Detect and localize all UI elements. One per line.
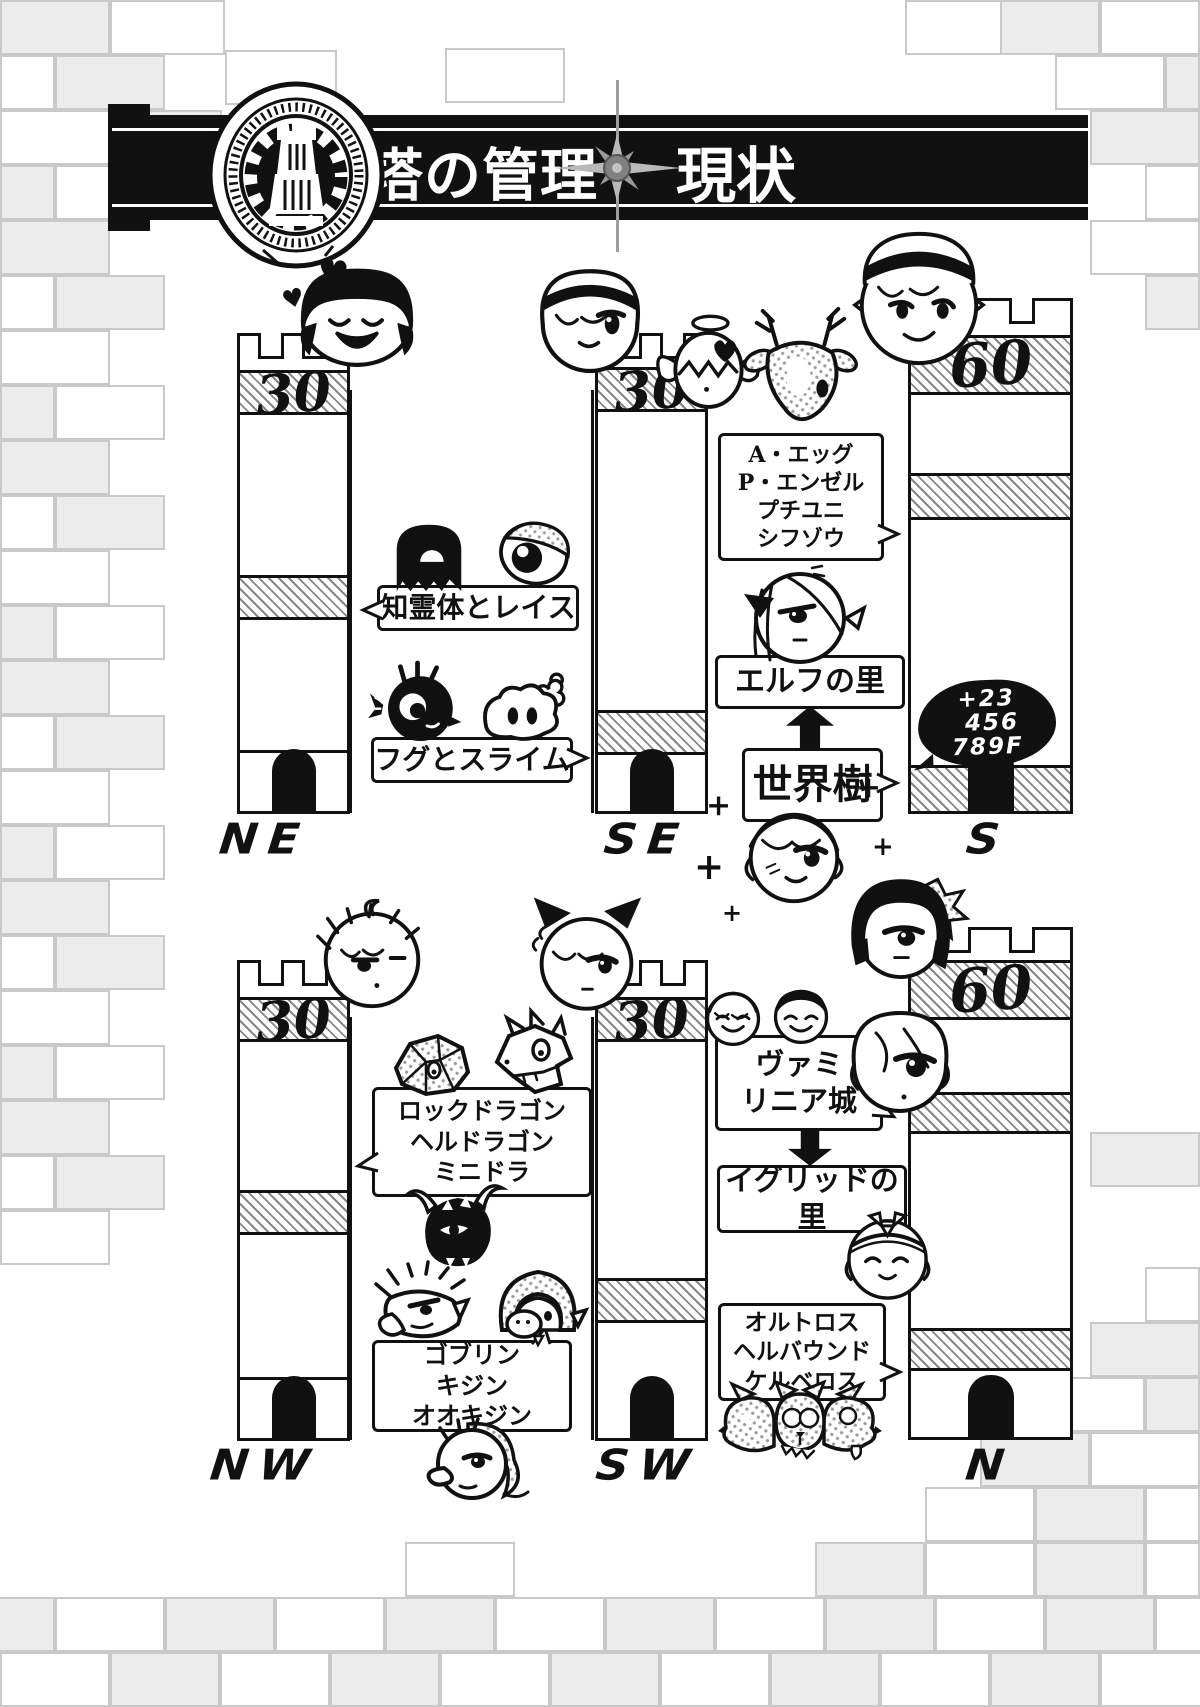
tower-s-direction: S	[935, 814, 1040, 864]
skull-dragon-head-icon	[483, 1006, 578, 1098]
sparkle-icon: +	[706, 788, 731, 823]
brick	[1165, 55, 1200, 110]
brick	[1090, 1132, 1200, 1187]
brick	[0, 825, 55, 880]
brick	[0, 935, 55, 990]
tower-n-door	[968, 1375, 1014, 1437]
brick	[0, 605, 55, 660]
brick	[0, 660, 110, 715]
tower-ne-floor-number: 30	[254, 358, 333, 427]
brick	[0, 715, 55, 770]
rock-dragon-head-icon	[382, 1018, 477, 1100]
character-ahoge-blond-head	[308, 896, 436, 1016]
brick	[55, 495, 165, 550]
brick	[550, 1652, 660, 1707]
brick	[495, 1597, 605, 1652]
brick	[0, 1045, 55, 1100]
tower-nw-direction: NW	[202, 1440, 327, 1490]
brick	[0, 550, 110, 605]
character-small-dark-laughing-head	[768, 984, 834, 1046]
brick	[0, 385, 55, 440]
character-white-hair-big-eye-head	[840, 1003, 960, 1123]
sparkle-icon: +	[872, 832, 894, 862]
bird-person-head-icon	[420, 1412, 535, 1507]
label-text: キジン	[436, 1371, 508, 1402]
brick	[0, 770, 110, 825]
brick	[275, 1597, 385, 1652]
crenellation-notch	[1009, 927, 1035, 953]
brick	[1035, 1487, 1145, 1542]
brick	[55, 1597, 165, 1652]
character-headband-closed-eyes-head	[836, 1210, 940, 1304]
brick	[605, 1597, 715, 1652]
bubble-tail	[565, 748, 589, 768]
character-small-blonde-laughing-head	[700, 986, 766, 1048]
tower-nw: 30	[237, 960, 350, 1441]
brick	[55, 1155, 165, 1210]
tower-s-stripe	[911, 473, 1070, 520]
brick	[1090, 220, 1200, 275]
brick	[880, 1652, 990, 1707]
tower-se-direction: SE	[587, 814, 705, 864]
brick	[0, 880, 110, 935]
character-flower-bob-head	[836, 866, 968, 1008]
brick	[1000, 0, 1100, 55]
label-text: エルフの里	[735, 663, 885, 701]
brick	[0, 1652, 110, 1707]
brick	[405, 1542, 515, 1597]
brick	[445, 48, 565, 103]
label-text: 世界樹	[753, 759, 873, 810]
sparkle-icon: +	[856, 770, 881, 805]
brick	[990, 1652, 1100, 1707]
tower-gear-emblem	[205, 80, 387, 270]
brick	[55, 385, 165, 440]
bubble-tail	[876, 524, 900, 544]
brick	[0, 110, 110, 165]
brick	[110, 1652, 220, 1707]
label-text: 知霊体とレイス	[380, 590, 575, 626]
brick	[0, 220, 110, 275]
brick	[440, 1652, 550, 1707]
brick	[1155, 1597, 1200, 1652]
brick	[815, 1542, 925, 1597]
compass-rose-icon	[550, 130, 685, 206]
bubble-tail	[361, 600, 385, 620]
tower-se-door	[630, 749, 674, 811]
brick	[55, 935, 165, 990]
brick	[770, 1652, 880, 1707]
tower-ne-direction: NE	[205, 814, 323, 864]
crenellation-notch	[660, 960, 686, 986]
brick	[0, 0, 110, 55]
brick	[825, 1597, 935, 1652]
brick	[55, 1045, 165, 1100]
tower-ne-door	[272, 749, 316, 811]
brick	[55, 55, 165, 110]
brick	[1045, 1597, 1155, 1652]
slime-icon	[473, 670, 568, 742]
tower-nw-door	[272, 1376, 316, 1438]
brick	[1100, 1652, 1200, 1707]
brick	[385, 1597, 495, 1652]
brick	[1090, 1432, 1200, 1487]
hooded-goblin-head-icon	[486, 1258, 588, 1352]
brick	[1145, 1542, 1200, 1597]
cerberus-three-heads-icon	[712, 1382, 887, 1472]
crenellation-notch	[1009, 298, 1035, 324]
character-elf-girl-head	[728, 564, 868, 666]
brick	[1090, 110, 1200, 165]
brick	[0, 990, 110, 1045]
label-text: P・エンゼル	[738, 469, 865, 497]
brick	[55, 605, 165, 660]
tower-nw-stripe	[240, 1190, 347, 1235]
brick	[715, 1597, 825, 1652]
brick	[1145, 165, 1200, 220]
brick	[0, 330, 110, 385]
brick	[1145, 1377, 1200, 1432]
brick	[330, 1652, 440, 1707]
tower-ne-stripe	[240, 575, 347, 620]
brick	[1145, 1487, 1200, 1542]
tower-n-stripe	[911, 1328, 1070, 1371]
brick	[55, 715, 165, 770]
brick	[220, 1652, 330, 1707]
brick	[0, 55, 55, 110]
character-blonde-headband-wink-head	[527, 262, 653, 374]
tower-sw-door	[630, 1376, 674, 1438]
crenellation-notch	[258, 960, 284, 986]
label-text: ロックドラゴン	[398, 1096, 566, 1127]
brick	[1035, 1542, 1145, 1597]
tower-n-direction: N	[937, 1440, 1042, 1490]
label-angel-group: A・エッグ P・エンゼル プチユニ シフゾウ	[718, 433, 884, 561]
label-text: ヘルドラゴン	[410, 1127, 554, 1158]
tower-sw-stripe	[598, 1278, 705, 1323]
goblin-head-icon	[370, 1260, 470, 1350]
tower-sw: 30	[595, 960, 708, 1441]
label-text: ヘルバウンド	[733, 1337, 871, 1366]
brick	[0, 275, 55, 330]
pufferfish-icon	[368, 658, 468, 746]
brick	[1145, 275, 1200, 330]
brick	[0, 1210, 110, 1265]
brick	[1100, 0, 1200, 55]
crenellation-notch	[258, 333, 284, 359]
brick	[0, 1597, 55, 1652]
brick	[1145, 1267, 1200, 1322]
brick	[1055, 55, 1165, 110]
character-elf-headband-head	[845, 222, 993, 380]
bubble-tail	[356, 1152, 380, 1172]
brick	[660, 1652, 770, 1707]
brick	[935, 1597, 1045, 1652]
brick	[925, 1542, 1035, 1597]
spirit-dark-bob-icon	[385, 516, 473, 594]
floors-added-line: 456	[965, 710, 1020, 736]
blob-tail	[911, 752, 936, 773]
brick	[0, 1100, 110, 1155]
brick	[0, 495, 55, 550]
deer-head-icon	[738, 303, 864, 447]
tower-ne-floor-band: 30	[240, 370, 347, 415]
brick	[1090, 1322, 1200, 1377]
label-text: ヴァミ	[755, 1046, 842, 1083]
brick	[55, 275, 165, 330]
manga-status-map-page: 塔の管理 現状MAP 30 NE	[0, 0, 1200, 1707]
label-text: シフゾウ	[757, 525, 845, 553]
bubble-tail	[878, 1362, 902, 1382]
brick	[55, 825, 165, 880]
floors-added-line: +23	[957, 686, 1015, 712]
label-text: フグとスライム	[374, 742, 569, 778]
sparkle-icon: +	[694, 846, 724, 888]
character-cat-ear-head	[526, 892, 648, 1020]
floors-added-line: 789F	[952, 734, 1025, 760]
character-dark-hair-laughing-head	[293, 264, 421, 368]
brick	[110, 0, 225, 55]
tower-ne: 30	[237, 333, 350, 814]
brick	[0, 165, 55, 220]
brick	[905, 0, 1015, 55]
label-text: オルトロス	[745, 1308, 860, 1337]
brick	[925, 1487, 1035, 1542]
brick	[0, 1155, 55, 1210]
brick	[0, 440, 110, 495]
label-text: プチユニ	[757, 497, 845, 525]
brick	[165, 1597, 275, 1652]
wraith-icon	[487, 508, 582, 594]
tower-sw-direction: SW	[585, 1440, 710, 1490]
